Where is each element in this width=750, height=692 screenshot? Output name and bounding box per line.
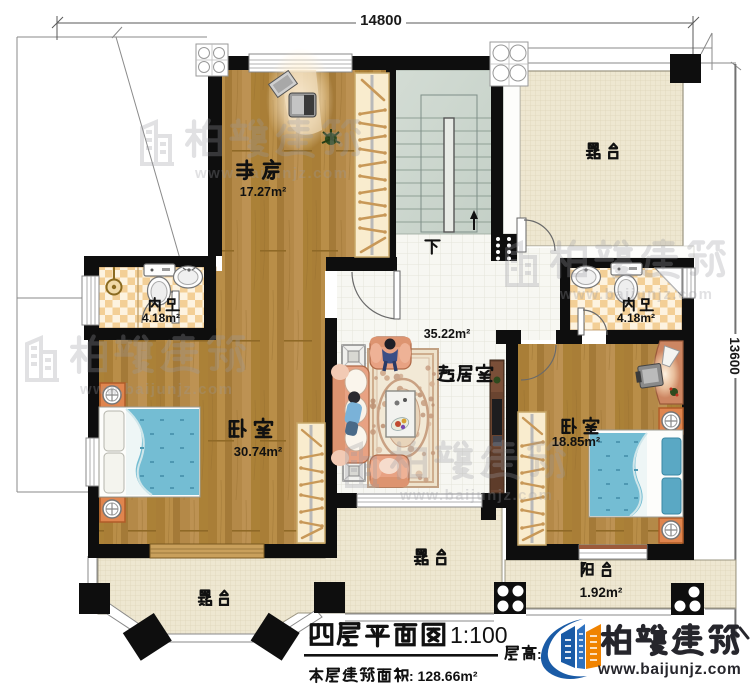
svg-text:35.22m²: 35.22m²: [424, 327, 471, 341]
svg-text:18.85m²: 18.85m²: [552, 434, 601, 449]
svg-text:4.18m²: 4.18m²: [142, 311, 180, 325]
svg-text:www.baijunjz.com: www.baijunjz.com: [597, 661, 741, 678]
svg-text:30.74m²: 30.74m²: [234, 444, 283, 459]
svg-text:14800: 14800: [360, 12, 402, 29]
svg-text:17.27m²: 17.27m²: [240, 185, 287, 199]
svg-text:: 128.66m²: : 128.66m²: [409, 668, 478, 684]
svg-text::: :: [537, 646, 542, 662]
svg-text:4.18m²: 4.18m²: [617, 311, 655, 325]
svg-text:1:100: 1:100: [450, 622, 508, 648]
svg-text:13600: 13600: [727, 337, 742, 375]
svg-text:1.92m²: 1.92m²: [580, 585, 623, 600]
